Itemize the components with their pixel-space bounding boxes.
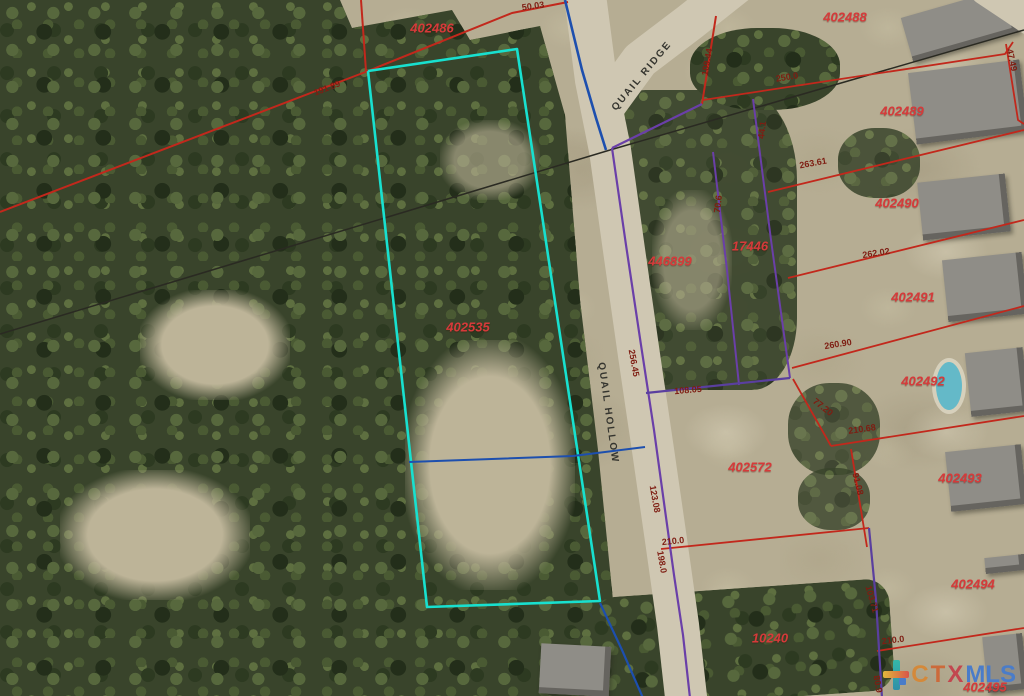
boundary-dimension-label: 198.0: [655, 550, 669, 574]
boundary-dimension-label: 103.71: [863, 584, 880, 613]
boundary-dimension-label: 260.90: [824, 337, 853, 351]
boundary-dimension-label: 77.20: [811, 396, 835, 418]
parcel-number-label: 402490: [875, 196, 918, 211]
wm-c: C: [911, 663, 928, 687]
aerial-parcel-map: 4024864024884024894024904024914024924024…: [0, 0, 1024, 696]
street-name-label: QUAIL HOLLOW: [595, 362, 620, 465]
boundary-dimension-label: 263.61: [799, 156, 828, 171]
parcel-number-label: 402493: [938, 471, 981, 486]
boundary-dimension-label: 44.1: [756, 121, 768, 140]
parcel-number-label: 402489: [880, 104, 923, 119]
parcel-number-label: 17446: [732, 239, 768, 254]
boundary-dimension-label: 47.49: [1005, 48, 1019, 72]
ctxmls-watermark: C T X MLS: [883, 660, 1016, 690]
parcel-number-label: 402492: [901, 374, 944, 389]
parcel-number-label: 402535: [446, 320, 489, 335]
boundary-dimension-label: 108.05: [674, 384, 702, 396]
boundary-dimension-label: 109.44: [700, 48, 715, 77]
boundary-dimension-label: 210.68: [848, 422, 877, 436]
parcel-number-label: 402572: [728, 460, 771, 475]
boundary-dimension-label: 191.89: [312, 78, 341, 97]
parcel-number-label: 446899: [648, 254, 691, 269]
boundary-dimension-label: 210.0: [661, 535, 684, 547]
boundary-dimension-label: 256.45: [627, 349, 642, 378]
boundary-dimension-label: 91.08: [850, 472, 865, 496]
parcel-number-label: 402488: [823, 10, 866, 25]
boundary-dimension-label: 50.03: [521, 0, 545, 13]
boundary-dimension-label: 210.0: [881, 634, 905, 647]
parcel-number-label: 402491: [891, 290, 934, 305]
ctxmls-compass-icon: [883, 660, 909, 690]
wm-mls: MLS: [965, 663, 1016, 687]
street-name-label: QUAIL RIDGE: [610, 39, 675, 113]
parcel-number-label: 10240: [752, 631, 788, 646]
parcel-number-label: 402494: [951, 577, 994, 592]
wm-x: X: [947, 663, 963, 687]
parcel-number-label: 402486: [410, 21, 453, 36]
boundary-dimension-label: 70.6: [712, 195, 724, 214]
map-labels-layer: 4024864024884024894024904024914024924024…: [0, 0, 1024, 696]
boundary-dimension-label: 250.0: [775, 70, 799, 83]
boundary-dimension-label: 262.02: [862, 246, 891, 260]
boundary-dimension-label: 123.08: [648, 485, 663, 514]
wm-t: T: [931, 663, 946, 687]
